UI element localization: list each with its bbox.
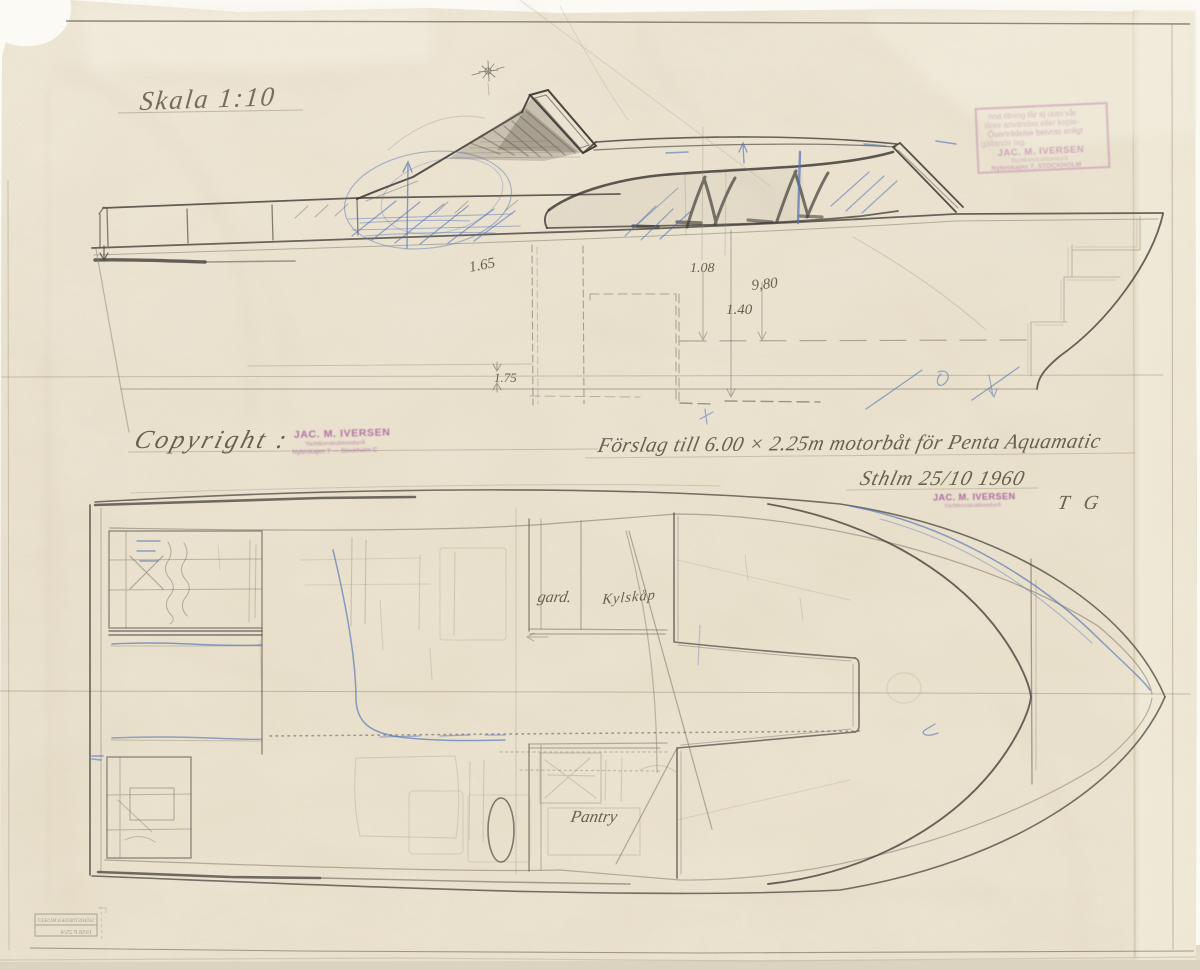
svg-text:Yachtkonstruktionsbyrå: Yachtkonstruktionsbyrå [944,501,1002,509]
svg-text:1958 P 25/4: 1958 P 25/4 [60,929,92,936]
svg-text:Sthlm 25/10 1960: Sthlm 25/10 1960 [858,466,1028,490]
svg-text:1.75: 1.75 [494,370,517,385]
svg-text:JAC. M. IVERSEN: JAC. M. IVERSEN [294,426,391,441]
svg-text:Copyright :: Copyright : [131,424,293,453]
svg-text:1.08: 1.08 [690,261,715,276]
svg-text:Förslag till 6.00 × 2.25m mo: Förslag till 6.00 × 2.25m motorbåt för P… [595,429,1103,457]
svg-text:SJÖHISTORISKA MUSEET: SJÖHISTORISKA MUSEET [37,918,94,924]
svg-text:1.40: 1.40 [726,302,753,318]
svg-text:JAC. M. IVERSEN: JAC. M. IVERSEN [933,491,1016,502]
svg-text:T G: T G [1056,492,1105,514]
svg-text:9,80: 9,80 [751,275,779,294]
svg-text:Pantry: Pantry [568,807,619,826]
svg-text:gard.: gard. [536,589,573,606]
